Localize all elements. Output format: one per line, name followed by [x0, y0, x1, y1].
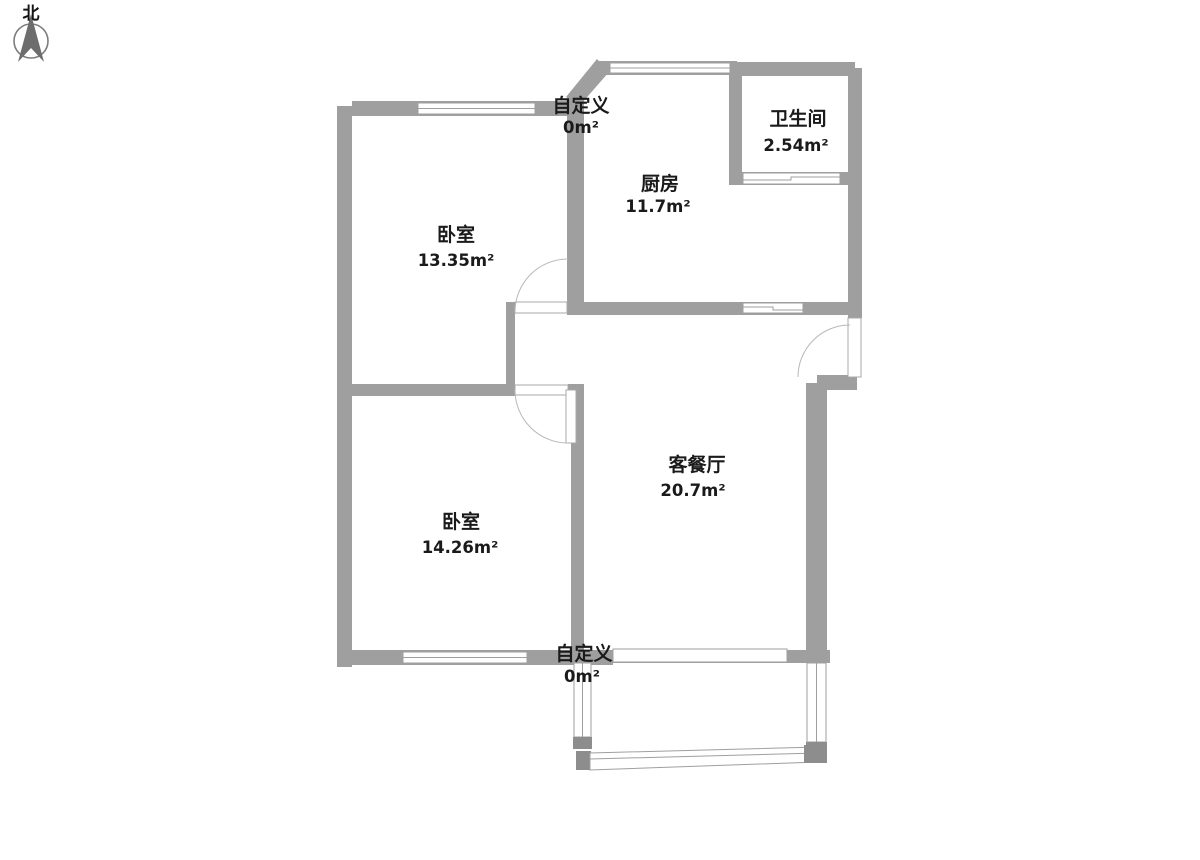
- door-swing-arc: [798, 325, 850, 377]
- wall-segment: [735, 62, 855, 76]
- room-area: 0m²: [564, 667, 600, 686]
- room-name: 卧室: [442, 510, 480, 533]
- window: [403, 652, 527, 663]
- balcony-front-window: [576, 745, 827, 770]
- room-label-kitchen: 厨房 11.7m²: [625, 172, 690, 216]
- wall-segment: [567, 302, 848, 315]
- room-area: 13.35m²: [418, 251, 495, 270]
- room-label-bathroom: 卫生间 2.54m²: [763, 107, 828, 155]
- wall-segment: [806, 383, 827, 663]
- room-area: 2.54m²: [763, 136, 828, 155]
- balcony-window: [806, 663, 827, 755]
- floor-plan-drawing: 北: [0, 0, 1200, 860]
- room-name: 厨房: [641, 172, 679, 195]
- room-area: 11.7m²: [625, 197, 690, 216]
- room-name: 卫生间: [769, 107, 826, 130]
- door-leaf: [566, 390, 576, 443]
- floor-plan-page: 北: [0, 0, 1200, 860]
- door-threshold: [515, 385, 568, 395]
- room-name: 卧室: [437, 223, 475, 246]
- window: [610, 63, 730, 73]
- room-name: 自定义: [555, 642, 612, 665]
- room-label-custom-top: 自定义 0m²: [552, 94, 609, 137]
- sliding-door: [743, 173, 840, 184]
- wall-segment: [506, 302, 515, 390]
- door-leaf: [515, 302, 567, 313]
- room-name: 客餐厅: [668, 453, 725, 476]
- room-name: 自定义: [552, 94, 609, 117]
- door-swing-arc: [515, 390, 568, 443]
- balcony-opening: [613, 649, 787, 662]
- room-label-living-dining: 客餐厅 20.7m²: [660, 453, 725, 500]
- door-bedroom-north: [515, 259, 568, 313]
- wall-segment: [729, 62, 742, 184]
- room-label-bedroom-south: 卧室 14.26m²: [422, 510, 499, 557]
- room-area: 14.26m²: [422, 538, 499, 557]
- north-compass-icon: 北: [14, 4, 48, 62]
- pass-through-window: [743, 303, 803, 313]
- window: [418, 103, 535, 114]
- wall-segment: [337, 384, 515, 396]
- door-leaf: [848, 318, 861, 377]
- door-entry: [798, 318, 861, 377]
- room-label-custom-bottom: 自定义 0m²: [555, 642, 612, 686]
- door-bedroom-south: [515, 385, 576, 443]
- room-area: 20.7m²: [660, 481, 725, 500]
- room-area: 0m²: [563, 118, 599, 137]
- compass-north-label: 北: [23, 4, 40, 24]
- room-label-bedroom-north: 卧室 13.35m²: [418, 223, 495, 270]
- wall-segment: [848, 68, 862, 318]
